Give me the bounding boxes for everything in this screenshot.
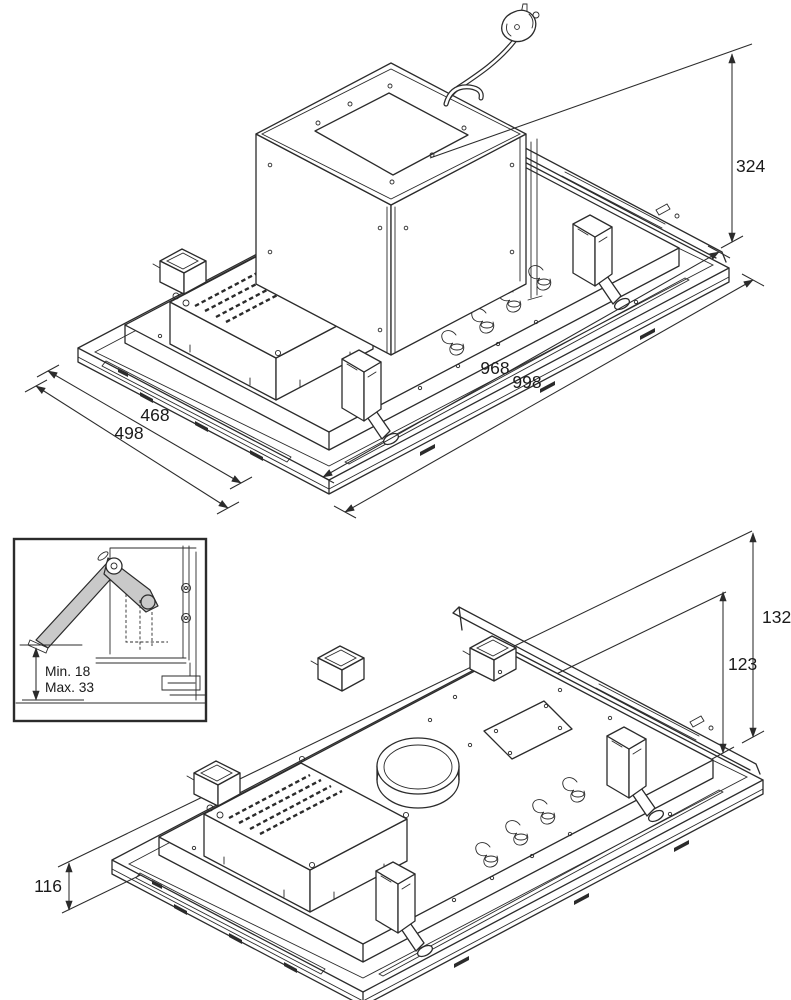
dim-label-123: 123 bbox=[728, 654, 757, 674]
dim-label-998: 998 bbox=[512, 372, 541, 392]
installation-diagram-page: 324 968 998 468 498 bbox=[0, 0, 791, 1000]
dim-116: 116 bbox=[34, 863, 69, 910]
installation-diagram: 324 968 998 468 498 bbox=[0, 0, 791, 1000]
dim-label-132: 132 bbox=[762, 607, 791, 627]
ceiling-reference-line bbox=[430, 44, 752, 158]
dim-324: 324 bbox=[721, 54, 765, 248]
power-cord bbox=[446, 40, 515, 104]
dim-label-498: 498 bbox=[114, 423, 143, 443]
dim-label-324: 324 bbox=[736, 156, 765, 176]
max-label: Max. 33 bbox=[45, 680, 94, 695]
dim-label-116: 116 bbox=[34, 876, 62, 896]
dim-123: 123 bbox=[712, 592, 757, 759]
power-plug-icon bbox=[502, 4, 539, 42]
duct-collar bbox=[377, 738, 459, 808]
detail-inset: Min. 18 Max. 33 bbox=[14, 539, 206, 721]
dim-label-468: 468 bbox=[140, 405, 169, 425]
min-label: Min. 18 bbox=[45, 664, 91, 679]
dim-132: 132 bbox=[742, 533, 791, 743]
dim-label-968: 968 bbox=[480, 358, 509, 378]
top-view: 324 968 998 468 498 bbox=[25, 4, 765, 518]
